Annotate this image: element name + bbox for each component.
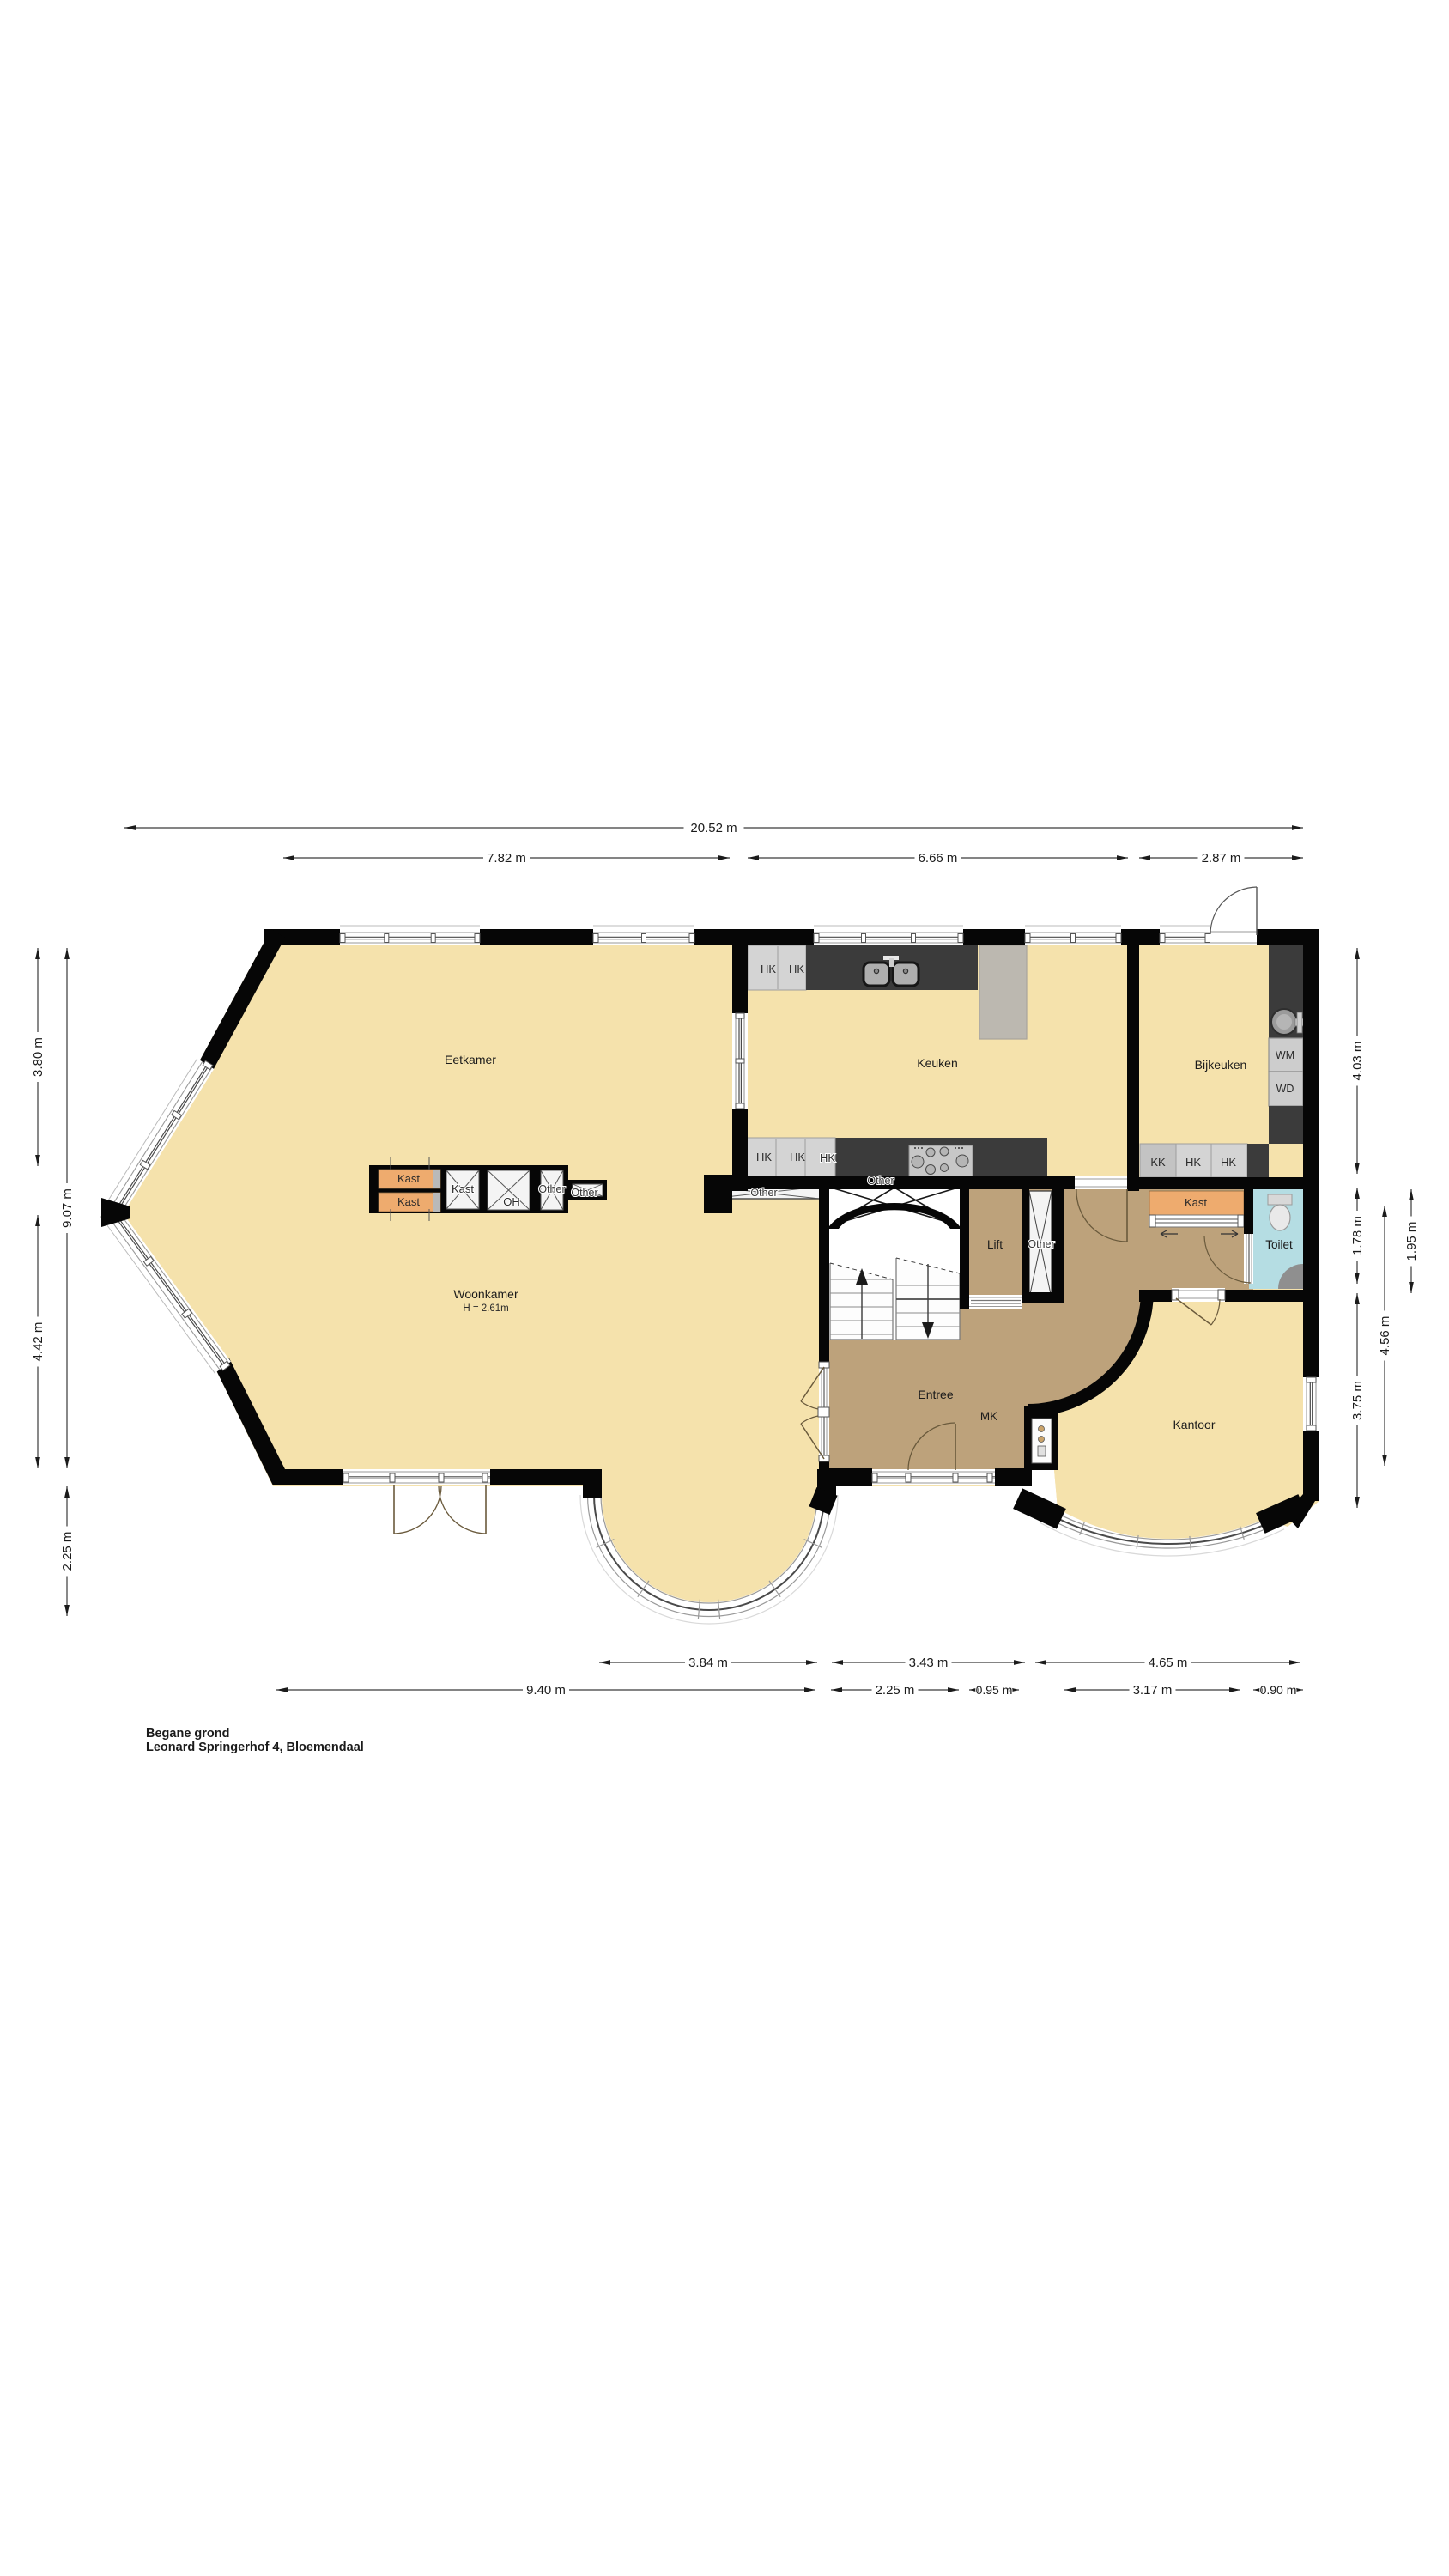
svg-text:0.90 m: 0.90 m (1260, 1683, 1297, 1697)
svg-text:2.25 m: 2.25 m (60, 1532, 75, 1571)
svg-text:Bijkeuken: Bijkeuken (1195, 1058, 1247, 1072)
svg-text:9.07 m: 9.07 m (60, 1188, 75, 1228)
svg-text:4.56 m: 4.56 m (1378, 1316, 1392, 1356)
svg-text:HK: HK (756, 1151, 772, 1163)
svg-text:1.95 m: 1.95 m (1404, 1222, 1419, 1261)
svg-text:20.52 m: 20.52 m (690, 821, 737, 835)
svg-text:2.25 m: 2.25 m (876, 1683, 915, 1698)
svg-text:HK: HK (790, 1151, 805, 1163)
svg-text:Woonkamer: Woonkamer (453, 1287, 518, 1301)
svg-text:WD: WD (1276, 1083, 1294, 1095)
svg-text:MK: MK (980, 1410, 997, 1423)
svg-text:0.95 m: 0.95 m (976, 1683, 1013, 1697)
svg-text:4.03 m: 4.03 m (1350, 1042, 1365, 1081)
svg-text:HK: HK (761, 963, 776, 975)
svg-text:4.65 m: 4.65 m (1149, 1656, 1188, 1670)
svg-text:Kast: Kast (397, 1195, 420, 1208)
svg-text:Other: Other (538, 1183, 565, 1195)
svg-text:1.78 m: 1.78 m (1350, 1216, 1365, 1255)
svg-text:Keuken: Keuken (917, 1056, 957, 1070)
svg-text:Kast: Kast (397, 1172, 420, 1185)
svg-text:2.87 m: 2.87 m (1202, 851, 1241, 866)
svg-text:HK: HK (1185, 1156, 1201, 1169)
svg-text:Kantoor: Kantoor (1173, 1418, 1215, 1431)
svg-text:3.43 m: 3.43 m (909, 1656, 949, 1670)
svg-text:3.17 m: 3.17 m (1133, 1683, 1173, 1698)
svg-text:3.84 m: 3.84 m (688, 1656, 728, 1670)
svg-text:Toilet: Toilet (1265, 1238, 1293, 1251)
svg-text:Entree: Entree (918, 1388, 953, 1401)
svg-text:Lift: Lift (987, 1238, 1003, 1251)
svg-text:3.75 m: 3.75 m (1350, 1381, 1365, 1420)
svg-text:4.42 m: 4.42 m (31, 1322, 45, 1362)
svg-text:Other: Other (1028, 1238, 1054, 1250)
svg-text:9.40 m: 9.40 m (526, 1683, 566, 1698)
svg-text:Kast: Kast (452, 1182, 474, 1195)
svg-text:3.80 m: 3.80 m (31, 1037, 45, 1077)
svg-text:OH: OH (503, 1195, 520, 1208)
svg-text:KK: KK (1150, 1156, 1166, 1169)
svg-text:6.66 m: 6.66 m (919, 851, 958, 866)
svg-text:H = 2.61m: H = 2.61m (463, 1303, 508, 1314)
svg-text:Other: Other (750, 1187, 777, 1199)
svg-text:Leonard Springerhof 4, Bloemen: Leonard Springerhof 4, Bloemendaal (146, 1741, 364, 1754)
svg-text:Other: Other (571, 1187, 597, 1199)
svg-text:Eetkamer: Eetkamer (445, 1053, 496, 1066)
svg-text:7.82 m: 7.82 m (487, 851, 526, 866)
svg-text:HK: HK (820, 1151, 835, 1164)
svg-text:HK: HK (1221, 1156, 1236, 1169)
svg-text:HK: HK (789, 963, 804, 975)
svg-text:Begane grond: Begane grond (146, 1727, 229, 1741)
svg-text:WM: WM (1276, 1049, 1294, 1061)
svg-text:Other: Other (867, 1175, 894, 1187)
svg-text:Kast: Kast (1185, 1196, 1207, 1209)
